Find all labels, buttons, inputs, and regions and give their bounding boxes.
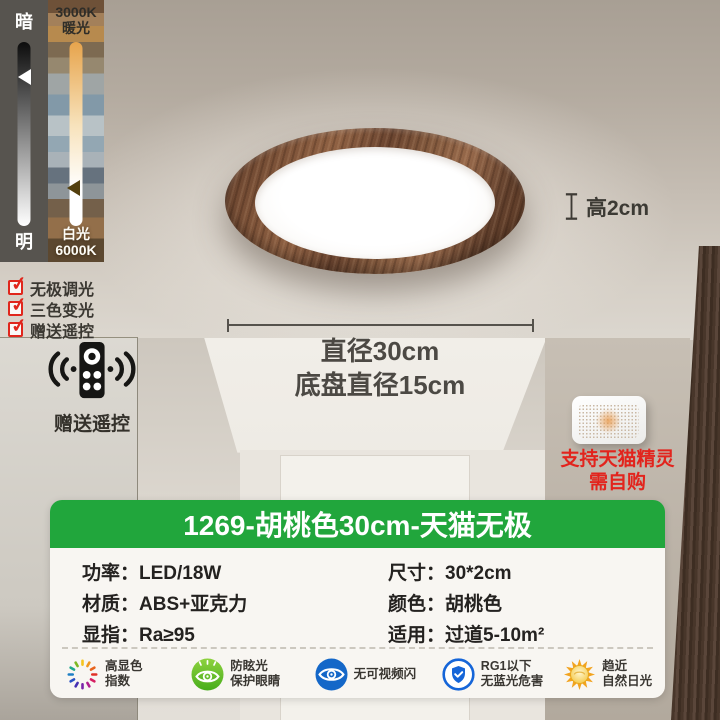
spec-value: Ra≥95 xyxy=(139,625,195,646)
feature-checklist: ✓ 无极调光 ✓ 三色变光 ✓ 赠送遥控 xyxy=(8,277,94,340)
color-temp-marker-icon xyxy=(67,180,80,196)
height-value: 高2cm xyxy=(586,192,649,222)
badge-line2: 自然日光 xyxy=(602,674,652,689)
cool-kelvin: 6000K xyxy=(48,242,104,258)
base-diameter-value: 底盘直径15cm xyxy=(160,368,600,402)
no-flicker-eye-icon xyxy=(315,658,348,691)
spec-value: 30*2cm xyxy=(445,563,512,584)
spec-value: 胡桃色 xyxy=(445,594,502,615)
speaker-note-line1: 支持天猫精灵 xyxy=(540,448,695,471)
spec-column-left: 功率：LED/18W 材质：ABS+亚克力 显指：Ra≥95 xyxy=(82,558,247,651)
badge-low-blue-light: RG1以下 无蓝光危害 xyxy=(442,658,563,691)
shield-check-icon xyxy=(442,658,475,691)
badge-anti-glare: 防眩光 保护眼睛 xyxy=(191,658,314,691)
badge-text: 高显色 指数 xyxy=(105,659,143,689)
product-infographic: 暗 明 3000K 暖光 白光 6000K ✓ 无极调光 ✓ 三色变光 xyxy=(0,0,720,720)
badge-no-flicker: 无可视频闪 xyxy=(315,658,442,691)
cool-label: 白光 6000K xyxy=(48,226,104,258)
spec-panel: 功率：LED/18W 材质：ABS+亚克力 显指：Ra≥95 尺寸：30*2cm… xyxy=(50,548,665,698)
diameter-annotation: 直径30cm 底盘直径15cm xyxy=(160,334,600,402)
spec-label: 显指： xyxy=(82,625,139,646)
checklist-item: ✓ 赠送遥控 xyxy=(8,319,94,340)
spec-value: 过道5-10m² xyxy=(445,625,544,646)
remote-gift: 赠送遥控 xyxy=(28,340,156,436)
anti-glare-eye-icon xyxy=(191,658,224,691)
badge-line2: 保护眼睛 xyxy=(230,674,280,689)
remote-control-icon xyxy=(32,340,152,402)
brightness-marker-icon xyxy=(18,69,31,85)
warm-label: 3000K 暖光 xyxy=(48,4,104,36)
brightness-dark-label: 暗 xyxy=(0,8,48,34)
spec-row: 材质：ABS+亚克力 xyxy=(82,589,247,620)
speaker-grille xyxy=(578,404,639,438)
warm-kelvin: 3000K xyxy=(48,4,104,20)
brightness-slider: 暗 明 xyxy=(0,0,48,262)
brightness-bright-label: 明 xyxy=(0,228,48,254)
height-measure-icon xyxy=(564,191,579,222)
badge-daylight: 趋近 自然日光 xyxy=(563,658,661,691)
warm-text: 暖光 xyxy=(48,20,104,36)
checklist-label: 赠送遥控 xyxy=(30,318,94,342)
badge-line2: 无蓝光危害 xyxy=(481,674,544,689)
color-temp-slider: 3000K 暖光 白光 6000K xyxy=(48,0,104,262)
badge-line1: 无可视频闪 xyxy=(354,667,417,682)
speaker-note-line2: 需自购 xyxy=(540,471,695,494)
product-title-banner: 1269-胡桃色30cm-天猫无极 xyxy=(50,500,665,548)
spec-label: 颜色： xyxy=(388,594,445,615)
ceiling-lamp xyxy=(225,128,525,274)
dimmer-legend: 暗 明 3000K 暖光 白光 6000K xyxy=(0,0,104,262)
cool-text: 白光 xyxy=(48,226,104,242)
product-title: 1269-胡桃色30cm-天猫无极 xyxy=(183,504,532,544)
spec-column-right: 尺寸：30*2cm 颜色：胡桃色 适用：过道5-10m² xyxy=(388,558,544,651)
height-annotation: 高2cm xyxy=(564,191,649,222)
red-checkbox-icon: ✓ xyxy=(8,322,23,337)
lamp-diffuser xyxy=(255,147,495,259)
tmall-genie-speaker xyxy=(572,396,646,444)
spec-value: LED/18W xyxy=(139,563,221,584)
diameter-value: 直径30cm xyxy=(160,334,600,368)
badge-text: 无可视频闪 xyxy=(354,667,417,682)
product-info-card: 1269-胡桃色30cm-天猫无极 功率：LED/18W 材质：ABS+亚克力 … xyxy=(50,500,665,698)
diameter-dimension-line xyxy=(227,319,534,332)
badge-line1: 趋近 xyxy=(602,659,652,674)
spec-row: 功率：LED/18W xyxy=(82,558,247,589)
badge-text: RG1以下 无蓝光危害 xyxy=(481,659,544,689)
badge-line1: RG1以下 xyxy=(481,659,544,674)
tmall-genie-note: 支持天猫精灵 需自购 xyxy=(540,448,695,494)
color-wheel-icon xyxy=(66,658,99,691)
spec-label: 材质： xyxy=(82,594,139,615)
remote-gift-label: 赠送遥控 xyxy=(28,409,156,436)
dashed-divider xyxy=(62,647,653,649)
badge-high-cri: 高显色 指数 xyxy=(66,658,191,691)
spec-label: 功率： xyxy=(82,563,139,584)
badge-text: 防眩光 保护眼睛 xyxy=(230,659,280,689)
badge-text: 趋近 自然日光 xyxy=(602,659,652,689)
spec-label: 尺寸： xyxy=(388,563,445,584)
badge-line1: 防眩光 xyxy=(230,659,280,674)
certification-badges: 高显色 指数 xyxy=(66,652,661,696)
spec-row: 尺寸：30*2cm xyxy=(388,558,544,589)
spec-label: 适用： xyxy=(388,625,445,646)
color-temp-gradient-bar xyxy=(70,42,83,226)
spec-row: 颜色：胡桃色 xyxy=(388,589,544,620)
spec-value: ABS+亚克力 xyxy=(139,594,247,615)
badge-line2: 指数 xyxy=(105,674,143,689)
sun-icon xyxy=(563,658,596,691)
badge-line1: 高显色 xyxy=(105,659,143,674)
